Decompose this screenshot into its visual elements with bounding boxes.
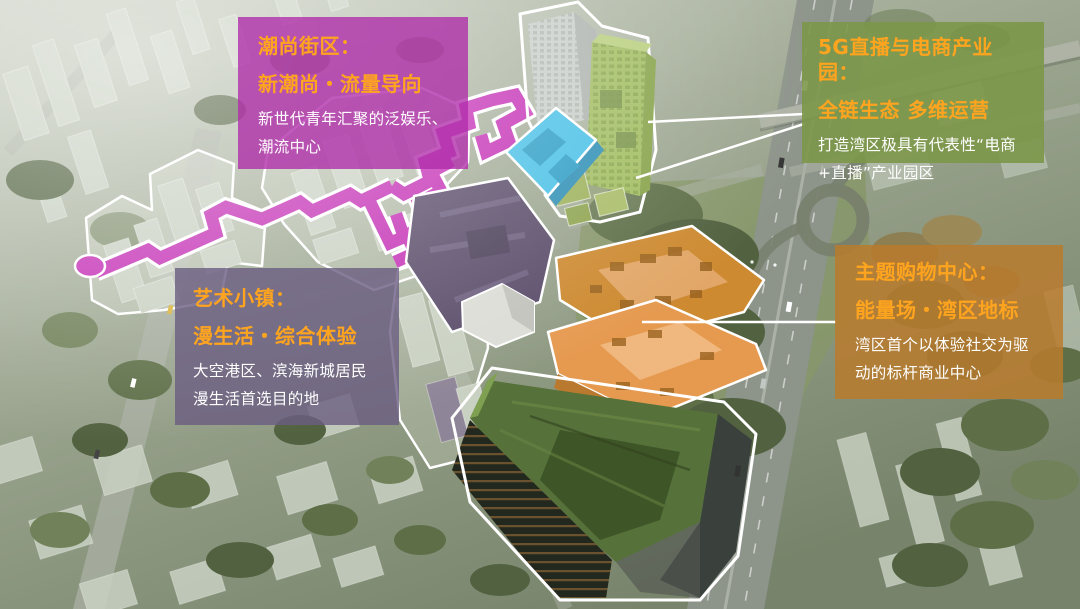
art-town-title: 艺术小镇：	[193, 286, 373, 311]
fashion-district-title: 潮尚街区：	[258, 34, 452, 59]
live-commerce-park-subtitle: 全链生态 多维运营	[818, 98, 1030, 123]
theme-mall-title: 主题购物中心：	[855, 260, 1031, 285]
fashion-district-description: 新世代青年汇聚的泛娱乐、潮流中心	[258, 105, 452, 161]
live-commerce-park-title: 5G直播与电商产业园：	[818, 35, 1030, 85]
callout-live-commerce-park: 5G直播与电商产业园： 全链生态 多维运营 打造湾区极具有代表性“电商+直播”产…	[802, 22, 1044, 163]
art-town-subtitle: 漫生活・综合体验	[193, 324, 373, 349]
live-commerce-park-description: 打造湾区极具有代表性“电商+直播”产业园区	[818, 131, 1030, 187]
callout-theme-mall: 主题购物中心： 能量场・湾区地标 湾区首个以体验社交为驱动的标杆商业中心	[835, 245, 1063, 399]
theme-mall-subtitle: 能量场・湾区地标	[855, 298, 1031, 323]
art-town-description: 大空港区、滨海新城居民漫生活首选目的地	[193, 357, 373, 413]
callout-art-town: 艺术小镇： 漫生活・综合体验 大空港区、滨海新城居民漫生活首选目的地	[175, 268, 399, 425]
fashion-district-subtitle: 新潮尚・流量导向	[258, 72, 452, 97]
callout-fashion-district: 潮尚街区： 新潮尚・流量导向 新世代青年汇聚的泛娱乐、潮流中心	[238, 17, 468, 169]
theme-mall-description: 湾区首个以体验社交为驱动的标杆商业中心	[855, 331, 1031, 387]
